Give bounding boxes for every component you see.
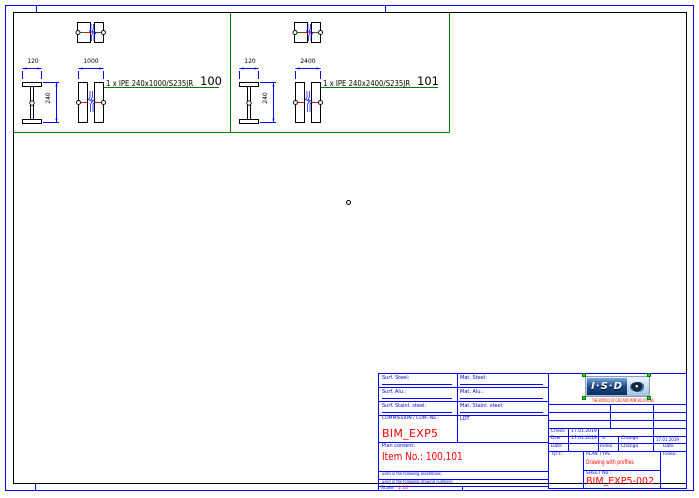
commission-label: COMMISSION / COM.-No.: [382, 417, 439, 422]
mat-stainless-label: Mat. Stainl. steel: [460, 404, 504, 409]
commission-value: BIM_EXP5 [382, 428, 438, 440]
plan-type-label: PLAN TYPE: [586, 453, 612, 458]
isd-logo[interactable]: I·S·D THE WORLD OF CAD AND PDM SOLUTIONS [578, 372, 654, 404]
drawing-sheet: 120 240 1000 1 x IPE 240x1000/S235JR 100 [0, 0, 699, 498]
revision-change-value: Change [621, 437, 638, 442]
date-label: Date [551, 445, 562, 450]
title-block-grid [0, 0, 699, 498]
eye-icon [630, 382, 645, 392]
isd-logo-text: I·S·D [587, 378, 627, 395]
index-label: Index: [663, 453, 677, 458]
plan-type-value: Drawing with profiles [586, 460, 634, 466]
selection-handle[interactable] [647, 396, 651, 400]
selection-handle[interactable] [582, 373, 586, 377]
lot-label: LOT [460, 417, 470, 422]
index-header: Index [600, 445, 612, 450]
change-header: Change [621, 445, 638, 450]
isd-logo-eye-panel [627, 378, 648, 395]
surf-stainless-label: Surf. Stainl. steel: [382, 404, 426, 409]
scale-label: Scale: [381, 487, 395, 492]
drawn-date: 17.01.2019 [571, 437, 597, 442]
drawing-numbers-note: used in the following drawing numbers: [382, 481, 453, 486]
revision-index-value: a [602, 437, 605, 442]
qty-label: QTY.: [552, 453, 563, 458]
selection-handle[interactable] [647, 373, 651, 377]
selection-handle[interactable] [582, 396, 586, 400]
mat-alu-label: Mat. Alu.: [460, 390, 484, 395]
mat-steel-label: Mat. Steel: [460, 376, 487, 381]
check-date: 17.01.2019 [571, 430, 597, 435]
date-header: Date [663, 445, 674, 450]
check-label: Check [551, 430, 565, 435]
assemblies-note: used in the following assemblies: [382, 473, 442, 478]
scale-value: 1:10 [398, 487, 408, 492]
isd-logo-box: I·S·D [585, 376, 650, 397]
plan-content-value: Item No.: 100,101 [382, 452, 463, 463]
drawn-label: Drw [551, 437, 560, 442]
surf-alu-label: Surf. Alu.: [382, 390, 406, 395]
isd-logo-subtitle: THE WORLD OF CAD AND PDM SOLUTIONS [592, 399, 644, 403]
surf-steel-label: Surf. Steel: [382, 376, 409, 381]
sheet-no-value: BIM_EXP5-002 [586, 477, 654, 487]
revision-date-value: 17.01.2019 [656, 438, 679, 442]
plan-content-label: Plan content: [382, 444, 415, 449]
